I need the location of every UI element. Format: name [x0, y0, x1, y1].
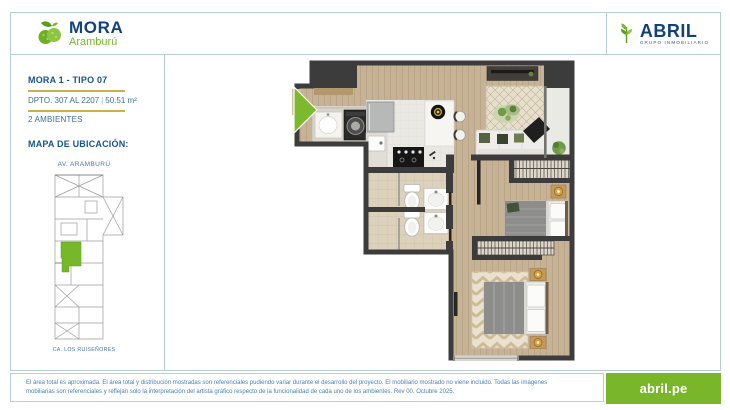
toilet: [404, 211, 420, 237]
balcony: [546, 86, 572, 158]
laundry: [312, 106, 367, 144]
abril-leaf-icon: [618, 23, 635, 45]
bed-double: [484, 282, 549, 334]
street-label-bottom: CA. LOS RUISEÑORES: [21, 347, 147, 353]
entry-shelf: [314, 88, 353, 95]
disclaimer: El área total es aproximada. El área tot…: [10, 373, 604, 402]
location-map: [41, 173, 133, 341]
mora-logo: MORA Aramburú: [37, 19, 123, 49]
developer-name: ABRIL: [640, 23, 709, 39]
street-label-top: AV. ARAMBURÚ: [21, 161, 147, 168]
unit-area: 50.51 m²: [105, 96, 137, 105]
website-label: abril.pe: [640, 381, 688, 396]
mora-berry-icon: [37, 19, 63, 49]
brand-subtitle: Aramburú: [69, 37, 123, 48]
bath-sink: [424, 189, 448, 210]
disclaimer-line-1: El área total es aproximada. El área tot…: [26, 379, 603, 388]
stove: [393, 147, 424, 167]
header-right-cell: ABRIL GRUPO INMOBILIARIO: [606, 13, 720, 54]
header-left-cell: MORA Aramburú: [11, 13, 606, 54]
bath-sink: [424, 213, 448, 234]
unit-details: DPTO. 307 AL 2207|50.51 m²: [28, 96, 137, 105]
website-button[interactable]: abril.pe: [606, 373, 721, 404]
pendant-lamp: [431, 105, 445, 119]
sidebar: MORA 1 - TIPO 07 DPTO. 307 AL 2207|50.51…: [11, 55, 165, 370]
bedroom-window: [453, 356, 519, 362]
gold-divider: [28, 90, 125, 92]
bed-single: [505, 201, 568, 240]
toilet: [404, 185, 420, 211]
abril-logo: ABRIL GRUPO INMOBILIARIO: [618, 23, 709, 45]
nightstand: [530, 337, 546, 349]
gold-divider: [28, 110, 125, 112]
tv-console: [487, 67, 538, 81]
unit-rooms: 2 AMBIENTES: [28, 115, 83, 124]
floor-plan: [288, 60, 578, 364]
washing-machine: [344, 110, 367, 140]
location-map-title: MAPA DE UBICACIÓN:: [28, 139, 129, 149]
disclaimer-line-2: mobiliarias son referenciales y reflejan…: [26, 388, 603, 397]
header: MORA Aramburú ABRIL GRUPO INMOBILIARIO: [11, 13, 720, 55]
unit-dpto: DPTO. 307 AL 2207: [28, 96, 99, 105]
nightstand: [530, 269, 546, 281]
brand-name: MORA: [69, 20, 123, 36]
fridge: [367, 102, 394, 132]
balcony-window: [544, 86, 547, 158]
unit-title: MORA 1 - TIPO 07: [28, 75, 107, 85]
developer-tagline: GRUPO INMOBILIARIO: [640, 40, 709, 45]
bedroom-2: [472, 269, 549, 349]
nightstand: [551, 185, 566, 198]
